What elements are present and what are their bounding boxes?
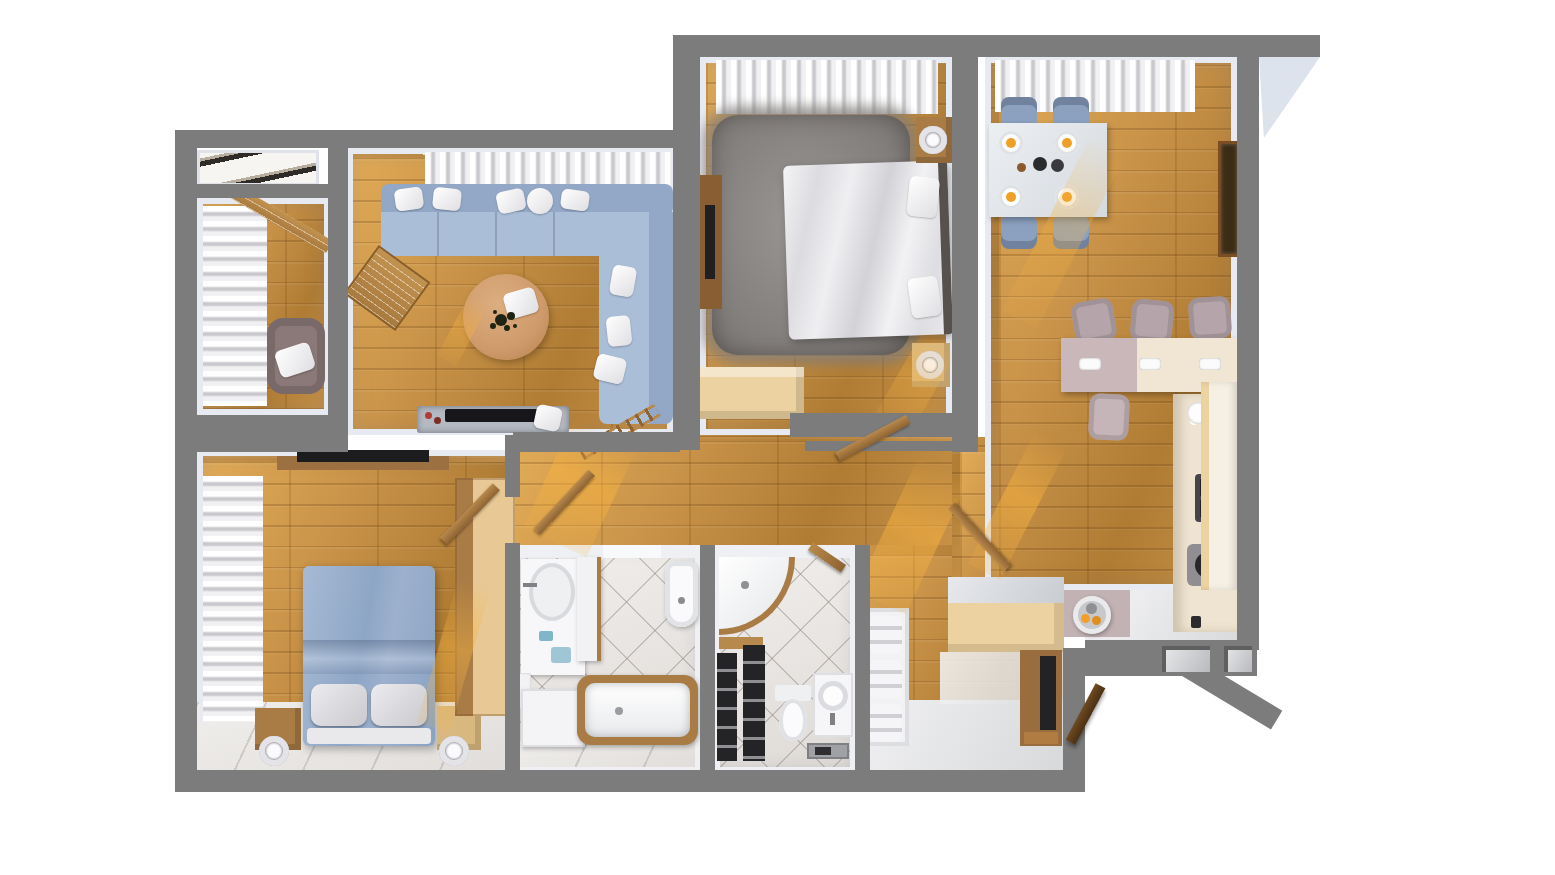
closet-divider-wall: [197, 184, 328, 198]
bar-stool: [1188, 296, 1233, 341]
pillow-stack: [870, 704, 902, 742]
tall-cabinet: [577, 557, 601, 661]
towel: [551, 647, 571, 663]
bed-pillow: [311, 684, 367, 726]
window-curtain: [203, 476, 263, 722]
hall-bench-top: [948, 577, 1064, 603]
pillow-stack: [870, 616, 902, 654]
window-curtain: [716, 60, 938, 114]
sofa-pillow: [560, 188, 591, 212]
bar-stool: [1129, 298, 1175, 344]
food: [1062, 138, 1072, 148]
outer-wall-left: [175, 130, 197, 792]
chaise-pillow: [605, 315, 632, 347]
apartment-floor-plan: [0, 0, 1555, 875]
study-bedroom2-wall: [175, 415, 348, 452]
shower-drain: [741, 581, 749, 589]
console-mirror: [1040, 656, 1056, 730]
duvet-fold: [303, 640, 435, 674]
wall-niche: [1162, 646, 1210, 672]
hall-bench: [948, 603, 1064, 652]
armchair: [267, 318, 325, 394]
washbasin: [529, 563, 575, 621]
socket: [1139, 358, 1161, 370]
tv-dresser: [700, 175, 722, 309]
kitchen-right-wall: [1237, 57, 1259, 650]
study-room: [197, 198, 330, 415]
corridor-stub-wall: [805, 441, 965, 451]
table-lamp: [919, 126, 947, 154]
kettle: [1086, 603, 1097, 614]
fridge: [1201, 382, 1237, 590]
tub-basin: [585, 683, 690, 737]
socket: [1191, 616, 1201, 628]
pot: [1051, 159, 1064, 172]
tray-item: [815, 747, 831, 755]
bed-pillow: [907, 275, 942, 319]
mattress-edge: [307, 728, 431, 744]
food: [1006, 138, 1016, 148]
outer-wall-bottom: [175, 770, 1065, 792]
sofa-pillow: [394, 186, 425, 212]
washbasin-cabinet: [813, 673, 853, 737]
double-bed: [783, 160, 953, 340]
outer-wall-top-left: [175, 130, 690, 148]
sofa-pillow: [432, 187, 462, 212]
study-living-wall: [328, 148, 348, 452]
round-basin: [818, 681, 848, 711]
fruit-table: [1073, 596, 1111, 634]
plate: [1055, 131, 1079, 155]
shelving-column: [717, 653, 737, 761]
bath-wc-divider-wall: [700, 545, 715, 792]
fruit: [1092, 616, 1101, 625]
exterior-facade: [1259, 57, 1320, 138]
faucet: [830, 713, 835, 725]
plate: [999, 131, 1023, 155]
easel-shelf: [343, 245, 430, 331]
floor-lamp: [259, 736, 289, 766]
outer-wall-top-right: [673, 35, 1320, 57]
plate: [999, 185, 1023, 209]
bed-pillow: [906, 176, 940, 219]
fruit: [1081, 614, 1090, 623]
bathtub: [577, 675, 698, 745]
toiletry: [539, 631, 553, 641]
toilet-bowl: [779, 699, 807, 741]
bedroom2-bath-wall-a: [505, 435, 520, 497]
bedroom1-left-wall: [673, 35, 700, 450]
food: [1006, 192, 1016, 202]
dining-chair: [1001, 215, 1037, 249]
vanity-cabinet: [521, 559, 585, 675]
drain: [678, 597, 685, 604]
wc-right-wall: [855, 545, 870, 792]
console-panel: [1020, 650, 1062, 746]
socket: [1199, 358, 1221, 370]
bedroom2-bath-wall-b: [505, 543, 520, 792]
sofa-round-pillow: [527, 188, 553, 214]
socket: [1079, 358, 1101, 370]
nightstand: [916, 117, 952, 163]
double-bed: [303, 566, 435, 746]
washer-cabinet: [521, 689, 585, 747]
wc-room: [715, 545, 855, 772]
wood-tray: [807, 743, 849, 759]
window-curtain: [203, 206, 267, 406]
toilet: [775, 685, 811, 745]
tub-drain: [615, 707, 623, 715]
corner-shower: [719, 557, 795, 635]
armchair-pillow: [274, 341, 317, 379]
bidet: [665, 561, 698, 627]
cup: [434, 417, 441, 424]
cup: [425, 412, 432, 419]
bedroom1-kitchen-wall: [952, 35, 978, 452]
bread-basket: [1017, 163, 1026, 172]
door-threshold: [603, 545, 661, 558]
bathroom: [513, 545, 700, 772]
corridor-top-wall: [513, 432, 680, 452]
bar-stool: [1088, 393, 1130, 441]
tv: [705, 205, 715, 279]
living-room: [347, 148, 673, 435]
faucet: [523, 583, 537, 587]
console-shelf: [1024, 732, 1058, 744]
pot: [1033, 157, 1047, 171]
wall-niche: [1224, 646, 1252, 672]
table-pillow: [502, 286, 540, 320]
pillow-stack: [870, 660, 902, 698]
shelving-column: [743, 645, 765, 761]
floor-pillow: [533, 404, 563, 433]
tv: [445, 409, 541, 422]
built-in-closet: [197, 150, 319, 186]
tv-stand: [417, 406, 569, 433]
floor-lamp: [439, 736, 469, 766]
table-plant: [495, 314, 507, 326]
bedroom-bench: [700, 367, 804, 419]
